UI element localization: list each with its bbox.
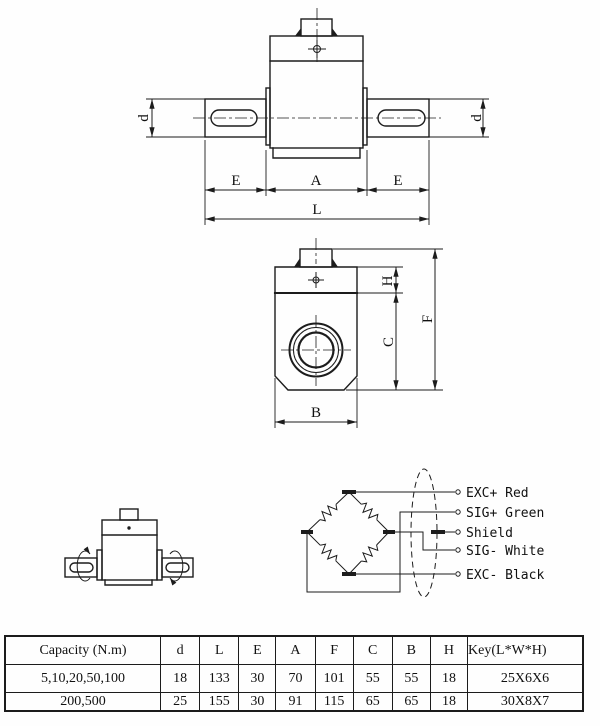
cell-b: 65 [392, 693, 430, 712]
cell-f: 101 [315, 665, 353, 693]
bridge-node-left [301, 530, 313, 534]
cell-c: 55 [353, 665, 392, 693]
iso-bottom-step [105, 580, 152, 585]
iso-connector [120, 509, 138, 520]
cell-l: 133 [200, 665, 239, 693]
cell-e: 30 [239, 665, 276, 693]
label-sig-plus: SIG+ Green [466, 506, 544, 521]
iso-center-mark [127, 526, 130, 529]
dim-label-e-left: E [231, 173, 240, 189]
cell-d: 18 [161, 665, 200, 693]
dim-label-d-left: d [136, 114, 152, 122]
label-exc-plus: EXC+ Red [466, 486, 529, 501]
cell-key: 30X8X7 [468, 693, 583, 712]
bridge-node-bottom [342, 572, 356, 576]
torque-sensor-datasheet: d d E A E L [0, 0, 600, 726]
dim-label-b: B [311, 405, 321, 421]
terminal-exc-plus [456, 490, 460, 494]
header-a: A [276, 636, 315, 665]
header-e: E [239, 636, 276, 665]
label-shield: Shield [466, 526, 513, 541]
iso-flange-right [157, 550, 162, 580]
terminal-sig-plus [456, 510, 460, 514]
iso-flange-left [97, 550, 102, 580]
front-connector [301, 19, 332, 36]
front-connector-foot-right [332, 28, 338, 36]
terminal-sig-minus [456, 548, 460, 552]
cell-b: 55 [392, 665, 430, 693]
wiring-diagram: EXC+ Red SIG+ Green Shield SIG- White EX… [301, 469, 544, 597]
iso-keyway-right [166, 563, 189, 572]
cell-h: 18 [430, 693, 467, 712]
side-connector [300, 249, 332, 267]
table-row: 5,10,20,50,100 18 133 30 70 101 55 55 18… [5, 665, 583, 693]
torque-direction-view [65, 509, 193, 585]
terminal-shield [456, 530, 460, 534]
dim-label-c: C [381, 337, 397, 347]
side-connector-foot-right [332, 258, 338, 267]
shield-bar [431, 530, 445, 534]
label-sig-minus: SIG- White [466, 544, 544, 559]
header-h: H [430, 636, 467, 665]
terminal-exc-minus [456, 572, 460, 576]
front-body-bottom-step [273, 148, 360, 158]
bridge-edges [307, 492, 389, 574]
cell-capacity: 200,500 [5, 693, 161, 712]
header-capacity: Capacity (N.m) [5, 636, 161, 665]
cell-c: 65 [353, 693, 392, 712]
table-row: 200,500 25 155 30 91 115 65 65 18 30X8X7 [5, 693, 583, 712]
cell-a: 70 [276, 665, 315, 693]
cell-e: 30 [239, 693, 276, 712]
technical-drawing: d d E A E L [0, 0, 600, 726]
cell-f: 115 [315, 693, 353, 712]
cell-a: 91 [276, 693, 315, 712]
dim-label-f: F [420, 315, 436, 323]
header-f: F [315, 636, 353, 665]
bridge-node-right [383, 530, 395, 534]
bridge-node-top [342, 490, 356, 494]
side-view: B H C F [275, 238, 443, 428]
table-header-row: Capacity (N.m) d L E A F C B H Key(L*W*H… [5, 636, 583, 665]
header-key: Key(L*W*H) [468, 636, 583, 665]
header-d: d [161, 636, 200, 665]
cell-capacity: 5,10,20,50,100 [5, 665, 161, 693]
side-connector-foot-left [294, 258, 300, 267]
cell-h: 18 [430, 665, 467, 693]
front-view: d d E A E L [136, 8, 489, 225]
iso-keyway-left [70, 563, 93, 572]
front-connector-foot-left [295, 28, 301, 36]
dim-label-d-right: d [469, 114, 485, 122]
cell-d: 25 [161, 693, 200, 712]
dim-label-h: H [380, 275, 396, 286]
wire-sig-minus [389, 532, 455, 550]
dim-label-e-right: E [393, 173, 402, 189]
header-c: C [353, 636, 392, 665]
label-exc-minus: EXC- Black [466, 568, 544, 583]
cell-l: 155 [200, 693, 239, 712]
dim-label-l: L [312, 202, 321, 218]
header-b: B [392, 636, 430, 665]
dim-label-a: A [311, 173, 322, 189]
cell-key: 25X6X6 [468, 665, 583, 693]
dimension-table: Capacity (N.m) d L E A F C B H Key(L*W*H… [4, 635, 584, 712]
header-l: L [200, 636, 239, 665]
